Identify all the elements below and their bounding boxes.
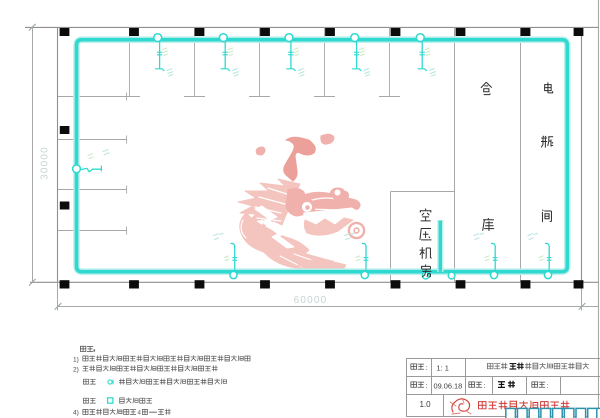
svg-text:4: 4 — [138, 410, 142, 417]
svg-text:09.06.18: 09.06.18 — [434, 381, 463, 390]
svg-text:30000: 30000 — [40, 146, 51, 180]
svg-text::: : — [426, 365, 428, 372]
svg-text::: : — [547, 383, 549, 390]
svg-text:60000: 60000 — [294, 295, 328, 306]
svg-text:1): 1) — [73, 356, 79, 363]
svg-text::: : — [426, 383, 428, 390]
svg-text:1: 1: 1: 1 — [437, 363, 449, 372]
svg-text:2): 2) — [73, 366, 79, 373]
svg-text:4): 4) — [73, 410, 79, 417]
svg-text::: : — [484, 383, 486, 390]
svg-text:1.0: 1.0 — [420, 400, 432, 409]
